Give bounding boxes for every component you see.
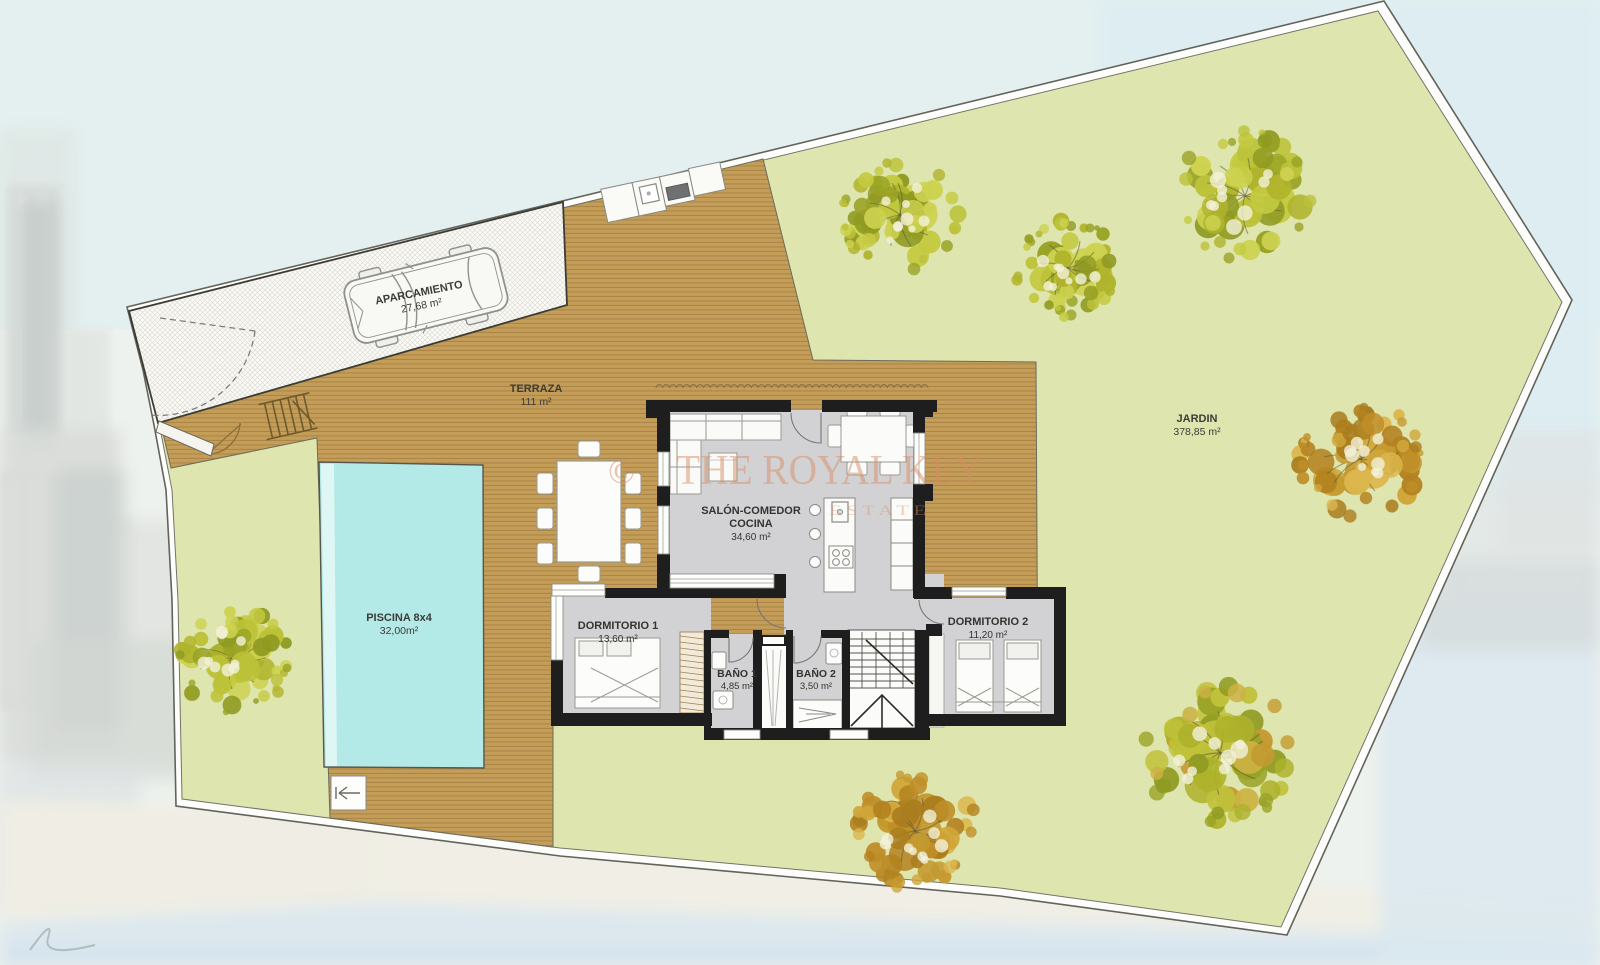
svg-text:13,60 m²: 13,60 m² xyxy=(598,634,638,645)
svg-text:BAÑO 1: BAÑO 1 xyxy=(717,667,757,680)
svg-text:32,00m²: 32,00m² xyxy=(380,625,419,637)
svg-text:11,20 m²: 11,20 m² xyxy=(969,630,1008,641)
svg-text:E S T A T E: E S T A T E xyxy=(829,503,926,519)
svg-text:SALÓN-COMEDOR: SALÓN-COMEDOR xyxy=(701,504,801,517)
svg-text:©: © xyxy=(608,451,635,491)
svg-text:4,85 m²: 4,85 m² xyxy=(721,681,753,692)
svg-text:378,85 m²: 378,85 m² xyxy=(1173,426,1221,438)
svg-text:THE ROYAL KEY: THE ROYAL KEY xyxy=(676,448,983,494)
svg-text:PISCINA 8x4: PISCINA 8x4 xyxy=(366,612,433,624)
svg-text:34,60 m²: 34,60 m² xyxy=(731,532,771,543)
svg-text:JARDIN: JARDIN xyxy=(1177,413,1218,425)
svg-text:BAÑO 2: BAÑO 2 xyxy=(796,667,836,680)
svg-text:3,50 m²: 3,50 m² xyxy=(800,681,832,692)
svg-text:DORMITORIO 2: DORMITORIO 2 xyxy=(948,616,1028,628)
svg-text:DORMITORIO 1: DORMITORIO 1 xyxy=(578,620,658,632)
svg-text:COCINA: COCINA xyxy=(729,518,772,530)
svg-text:111 m²: 111 m² xyxy=(520,396,552,408)
svg-text:TERRAZA: TERRAZA xyxy=(510,383,563,395)
